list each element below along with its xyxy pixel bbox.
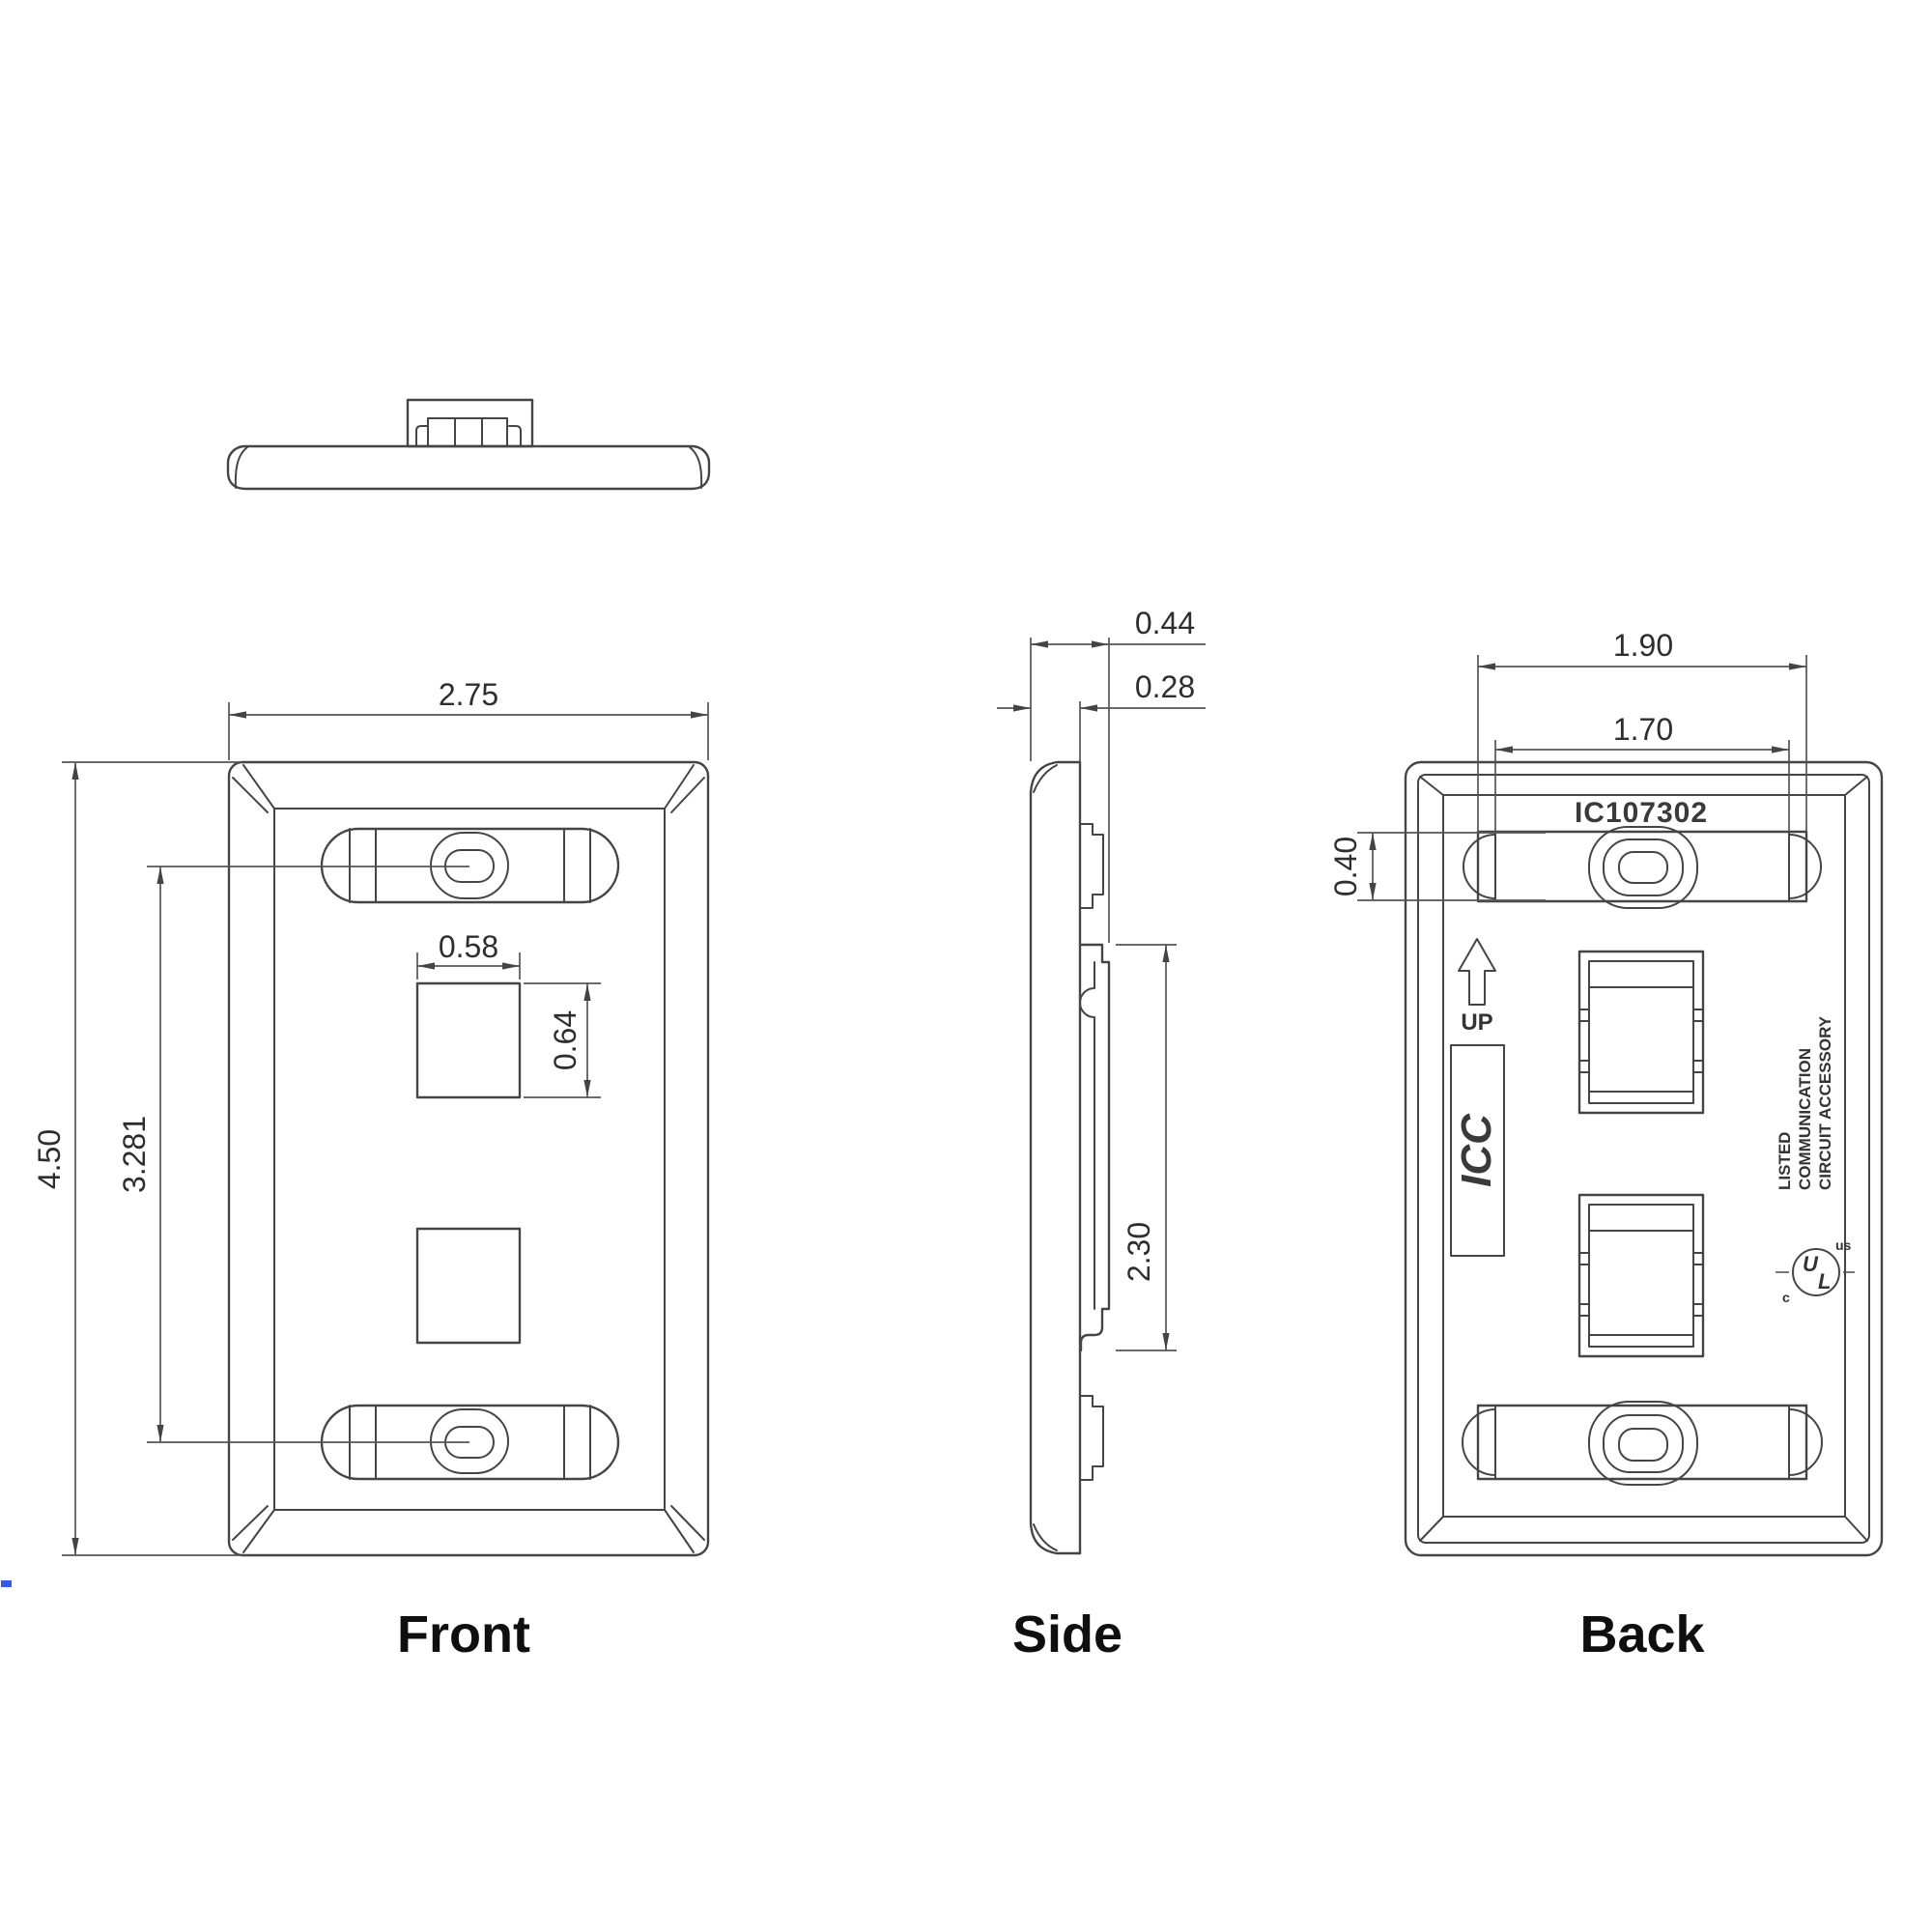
top-view-bracket	[408, 400, 532, 446]
listing-line2: COMMUNICATION	[1796, 1048, 1814, 1190]
housing1-inner	[1589, 961, 1693, 1103]
side-top-curve-inner	[1034, 765, 1057, 792]
back-slot-height-value: 0.40	[1328, 837, 1363, 896]
side-depth-extensions	[1031, 638, 1109, 943]
front-spacing-value: 3.281	[117, 1116, 152, 1193]
front-width-value: 2.75	[439, 677, 498, 712]
housing2-ticks	[1579, 1253, 1703, 1316]
listing-line3: CIRCUIT ACCESSORY	[1816, 1015, 1834, 1190]
side-depth-value: 0.44	[1135, 606, 1195, 640]
front-spacing-leaders	[147, 867, 469, 1442]
side-bottom-curve-inner	[1034, 1524, 1057, 1550]
back-top-slot-arcs	[1463, 835, 1821, 898]
front-height-value: 4.50	[32, 1129, 67, 1189]
front-corner-tr	[665, 765, 704, 812]
back-dimensions: 1.90 1.70 0.40	[1328, 628, 1806, 900]
side-boss-extensions	[1116, 945, 1177, 1350]
side-top-curve	[1031, 762, 1080, 794]
front-corner-br	[665, 1506, 704, 1552]
front-corner-tl	[233, 765, 274, 812]
front-bottom-slot-oval-outer	[431, 1409, 508, 1473]
ul-letter-l: L	[1818, 1269, 1831, 1293]
faceplate-drawing: 2.75 4.50 3.281 0.58 0.64 0	[0, 0, 1932, 1932]
listing-line1: LISTED	[1776, 1132, 1794, 1190]
top-view-left-edge-arc	[236, 447, 247, 488]
back-port-housing-2	[1579, 1195, 1703, 1356]
back-view: IC107302 UP ICC LISTED COMMUNICATION CIR…	[1406, 762, 1882, 1555]
back-outer-value: 1.90	[1613, 628, 1673, 663]
technical-drawing-page: 2.75 4.50 3.281 0.58 0.64 0	[0, 0, 1932, 1932]
back-view-label: Back	[1579, 1605, 1705, 1663]
back-inner-value: 1.70	[1613, 712, 1673, 747]
top-view-right-edge-arc	[690, 447, 701, 488]
housing2-outer	[1579, 1195, 1703, 1356]
port-width-value: 0.58	[439, 929, 498, 964]
up-arrow-icon	[1459, 939, 1495, 1005]
housing2-inner	[1589, 1205, 1693, 1347]
side-top-bracket	[1080, 824, 1103, 908]
housing2-bands	[1589, 1231, 1693, 1335]
housing1-bands	[1589, 987, 1693, 1092]
top-view	[228, 400, 709, 489]
side-boss-inner-profile	[1080, 962, 1094, 1309]
back-top-slot-dlines	[1495, 832, 1789, 901]
top-view-connector-tab-right	[509, 426, 521, 446]
housing1-ticks	[1579, 1009, 1703, 1072]
back-top-screw-slot	[1478, 832, 1806, 901]
brand-logo-text: ICC	[1453, 1113, 1500, 1187]
front-view	[229, 762, 708, 1555]
front-top-slot-oval-outer	[431, 833, 508, 898]
back-bottom-oval-mid	[1604, 1415, 1683, 1472]
front-corner-bl	[233, 1506, 274, 1552]
top-view-plate-outline	[228, 446, 709, 489]
ul-suffix: us	[1835, 1237, 1852, 1253]
up-label: UP	[1461, 1009, 1492, 1036]
ul-mark: U L c us	[1776, 1237, 1855, 1305]
front-height-extensions	[62, 762, 241, 1555]
back-top-oval-inner	[1619, 852, 1667, 883]
back-top-oval-mid	[1604, 839, 1683, 895]
side-edge-value: 0.28	[1135, 669, 1195, 704]
side-dimensions: 0.44 0.28 2.30	[997, 606, 1206, 1350]
port-height-value: 0.64	[548, 1010, 582, 1070]
front-view-label: Front	[397, 1605, 530, 1663]
view-labels: Front Side Back	[397, 1605, 1705, 1663]
top-view-connector-tab-left	[416, 426, 428, 446]
side-boss-value: 2.30	[1122, 1222, 1156, 1282]
back-bottom-slot-dlines	[1495, 1406, 1789, 1479]
top-view-connector-body	[428, 418, 507, 446]
front-top-slot-lines	[350, 829, 590, 902]
front-top-screw-slot	[322, 829, 618, 902]
blue-scan-artifact	[1, 1580, 12, 1587]
back-bottom-slot-arcs	[1463, 1409, 1822, 1475]
part-number-text: IC107302	[1575, 797, 1708, 829]
ul-prefix: c	[1782, 1290, 1790, 1305]
housing1-outer	[1579, 952, 1703, 1113]
front-port-opening-1	[417, 983, 520, 1097]
back-bottom-oval-inner	[1619, 1429, 1667, 1461]
side-view-label: Side	[1012, 1605, 1122, 1663]
side-bottom-bracket	[1080, 1396, 1103, 1480]
ul-letter-u: U	[1803, 1252, 1819, 1276]
back-slot-height-extensions	[1357, 833, 1546, 900]
side-view	[1031, 762, 1109, 1553]
back-port-housing-1	[1579, 952, 1703, 1113]
front-port-opening-2	[417, 1229, 520, 1343]
back-bottom-screw-slot	[1478, 1406, 1806, 1479]
